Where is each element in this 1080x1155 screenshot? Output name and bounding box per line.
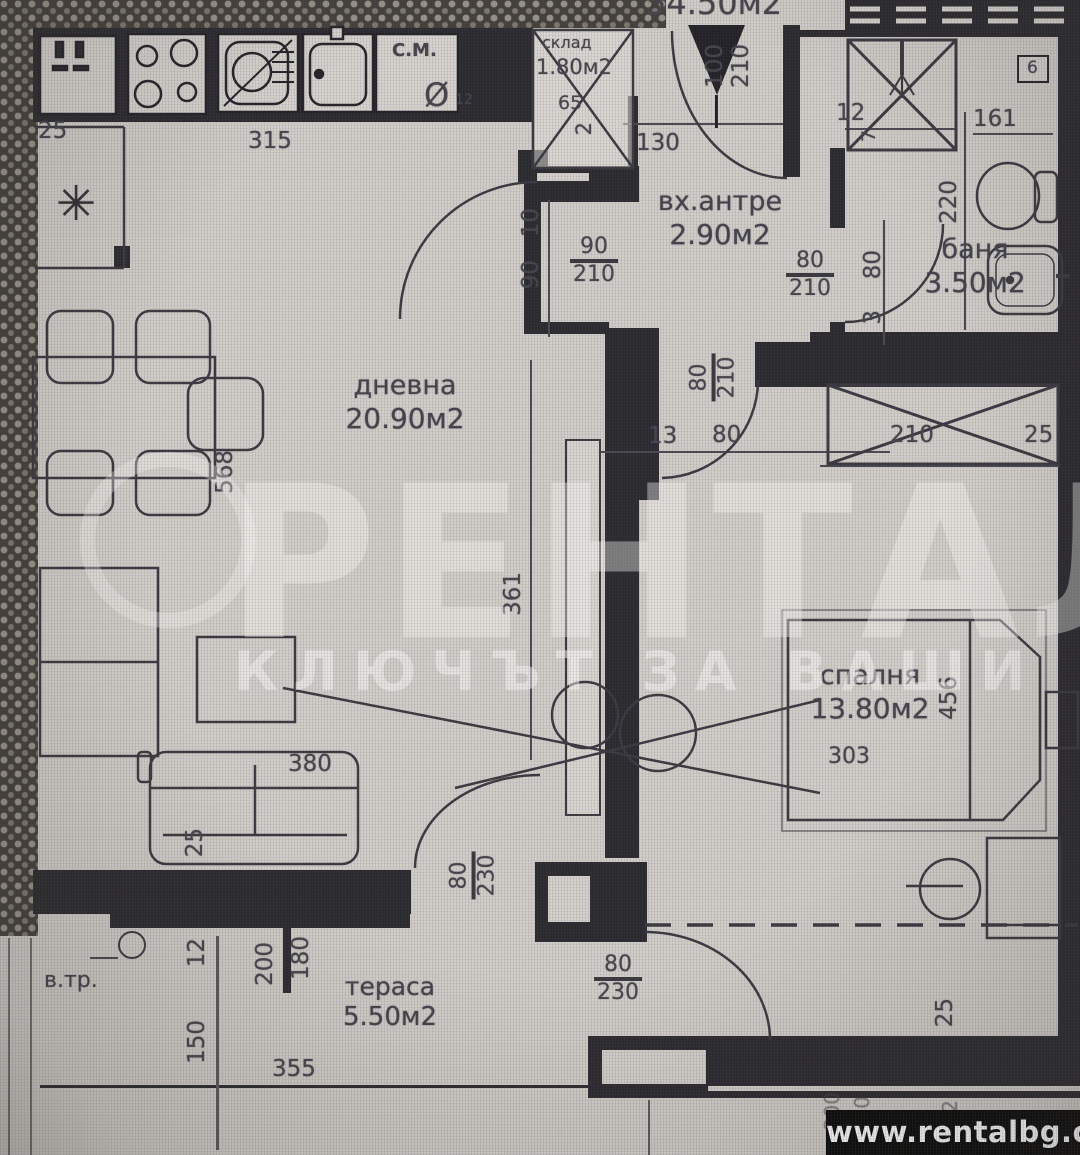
dim-ter-150: 150 [184, 1020, 210, 1064]
column-symbol [906, 859, 980, 919]
chair [47, 311, 113, 383]
dim-entry-door-h: 210 [728, 44, 754, 88]
shaft-label: 6 [1027, 58, 1038, 78]
dim-entry-door-w: 100 [702, 44, 728, 88]
dim-bed-303: 303 [828, 744, 870, 769]
dim-bedroom-terrace-door: 80230 [594, 954, 642, 1005]
dim-ter-180: 180 [288, 936, 314, 980]
dim-hall-width: 130 [636, 130, 680, 156]
chair [136, 311, 210, 383]
vtr-circle [119, 932, 145, 958]
storage-area: 1.80м2 [536, 55, 612, 79]
dim-ter-12: 12 [184, 938, 210, 967]
vtr-label: в.тр. [44, 968, 98, 993]
dim-bath-220: 220 [936, 180, 962, 224]
washing-machine-icon [218, 34, 298, 112]
dim-seg-90: 90 [518, 260, 544, 289]
dim-ter-200: 200 [252, 942, 278, 986]
diameter-symbol: Ø [424, 76, 449, 114]
dim-living-door: 90210 [570, 236, 618, 287]
dim-bath-3: 3 [860, 310, 886, 325]
nightstand [987, 838, 1060, 938]
storage-d2: 2 [572, 122, 596, 135]
stove-icon [128, 34, 206, 114]
dim-seg-10: 10 [518, 208, 544, 237]
room-entrance: вх.антре 2.90м2 [650, 186, 790, 251]
dim-bath-door: 80210 [786, 250, 834, 301]
dim-niche: 25 [38, 118, 67, 144]
toilet-icon [977, 163, 1057, 229]
watermark-brand: РЕНТАЛ [226, 458, 1080, 670]
room-living: дневна 20.90м2 [320, 370, 490, 435]
dim-161: 161 [973, 106, 1017, 132]
dim-shower-12: 12 [836, 100, 865, 126]
living-door-arc [400, 182, 537, 319]
storage-d1: 65 [558, 92, 582, 114]
room-terrace: тераса 5.50м2 [325, 972, 455, 1032]
washer-label: С.М. [392, 40, 437, 61]
dim-kitchen-width: 315 [248, 128, 292, 154]
diameter-value: 12 [455, 92, 473, 108]
dim-sofa-25: 25 [182, 828, 208, 857]
kitchen-sink-icon [303, 27, 373, 112]
dim-terrace-door: 80230 [449, 845, 500, 905]
dim-sofa-380: 380 [288, 751, 332, 777]
asterisk-symbol: ✳ [56, 176, 96, 232]
dim-bedroom-door: 80210 [689, 347, 740, 407]
website-bar: www.rentalbg.com [826, 1110, 1080, 1155]
dim-shower-7: 7 [858, 130, 880, 142]
dim-355: 355 [272, 1056, 316, 1082]
bedroom-terrace-door-arc [645, 932, 770, 1040]
room-bath: баня 3.50м2 [910, 234, 1040, 299]
floorplan-photo: 54.50м2 С.М. Ø 12 ✳ 6 в.тр. дневна 20.90… [0, 0, 1080, 1155]
total-area-label: 54.50м2 [646, 0, 782, 22]
dim-bath-80: 80 [860, 250, 886, 279]
dim-proj-25: 25 [932, 998, 958, 1027]
storage-name: склад [542, 33, 592, 52]
watermark-slogan: КЛЮЧЪТ ЗА ВАШИ [234, 640, 1040, 703]
